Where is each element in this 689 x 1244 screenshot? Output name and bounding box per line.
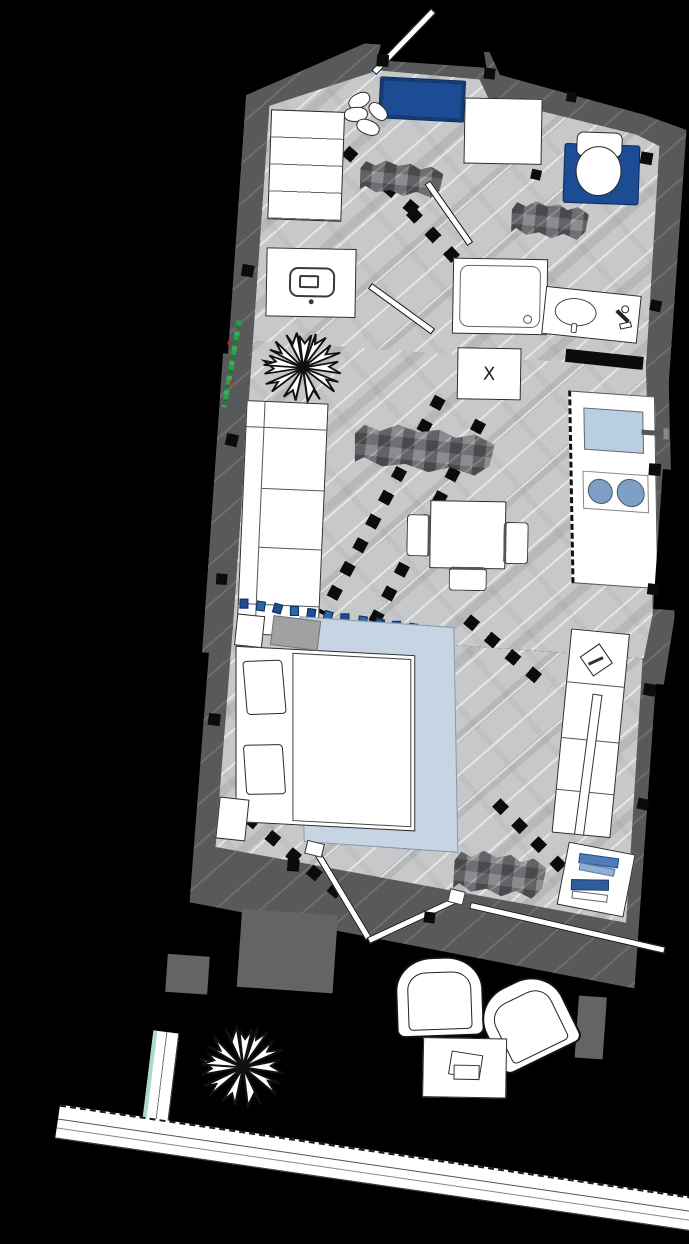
books (571, 890, 608, 902)
wall-dash-square (648, 463, 661, 476)
faucet-icon (611, 304, 636, 332)
screenshot-root: { "plan": { "type": "apartment floor pla… (0, 0, 689, 1200)
shaft-marker: X (457, 347, 522, 400)
terrace-wall-patch (165, 954, 210, 995)
decor-diamond (580, 643, 613, 676)
wall-dash-square (241, 264, 255, 278)
wall-dash-square (216, 573, 228, 585)
washing-machine (265, 247, 356, 318)
pillow (243, 744, 286, 795)
kitchen-counter (568, 390, 658, 589)
wall-dash-square (640, 151, 654, 165)
terrace-armchair (394, 955, 485, 1038)
wall-dash-square (483, 67, 495, 79)
bookshelf (557, 842, 636, 918)
pillow (242, 660, 286, 716)
shaft-label: X (483, 363, 496, 384)
cooktop (582, 471, 649, 514)
curtain-segment (256, 600, 266, 611)
terrace-wall-patch (237, 909, 338, 994)
sliding-mirror (574, 694, 602, 836)
wall-dash-square (423, 911, 435, 923)
plant-icon (258, 329, 349, 407)
vanity-sink (541, 286, 641, 344)
red-speck (228, 341, 231, 345)
coffee-table (422, 1037, 507, 1098)
wall-dash-square (287, 859, 300, 872)
nightstand (234, 613, 265, 648)
curtain-segment (239, 599, 248, 609)
floor-plan-canvas: X (148, 8, 689, 1244)
sofa-armrest (246, 401, 327, 430)
double-bed (236, 646, 416, 832)
shelf-wardrobe (267, 109, 345, 222)
books (571, 879, 609, 891)
nightstand (215, 797, 249, 842)
shoes (341, 88, 395, 143)
red-speck (230, 381, 233, 385)
burner (617, 478, 645, 508)
ac-unit-gray (270, 615, 321, 651)
mattress (292, 653, 411, 827)
plant-icon (194, 1022, 292, 1112)
kitchen-sink (583, 407, 644, 453)
dining-chair (406, 514, 431, 556)
dining-chair (503, 522, 529, 564)
terrace-railing-front (55, 1105, 689, 1234)
armchair-seat (407, 971, 473, 1031)
curtain-segment (290, 606, 299, 616)
dining-chair (449, 567, 487, 592)
wall-dash-square (647, 583, 659, 595)
wall-dash-square (208, 713, 221, 726)
hall-cabinet (463, 98, 542, 165)
curtain-segment (272, 602, 283, 614)
wall-dash-square (643, 683, 657, 697)
wall-dash-square (636, 798, 649, 811)
terrace-pillar (575, 996, 607, 1060)
toilet (562, 131, 641, 208)
wall-dash-square (376, 54, 389, 67)
shower (452, 258, 548, 336)
wall-dash-square (566, 91, 578, 103)
dining-table (429, 500, 506, 569)
burner (588, 478, 613, 505)
